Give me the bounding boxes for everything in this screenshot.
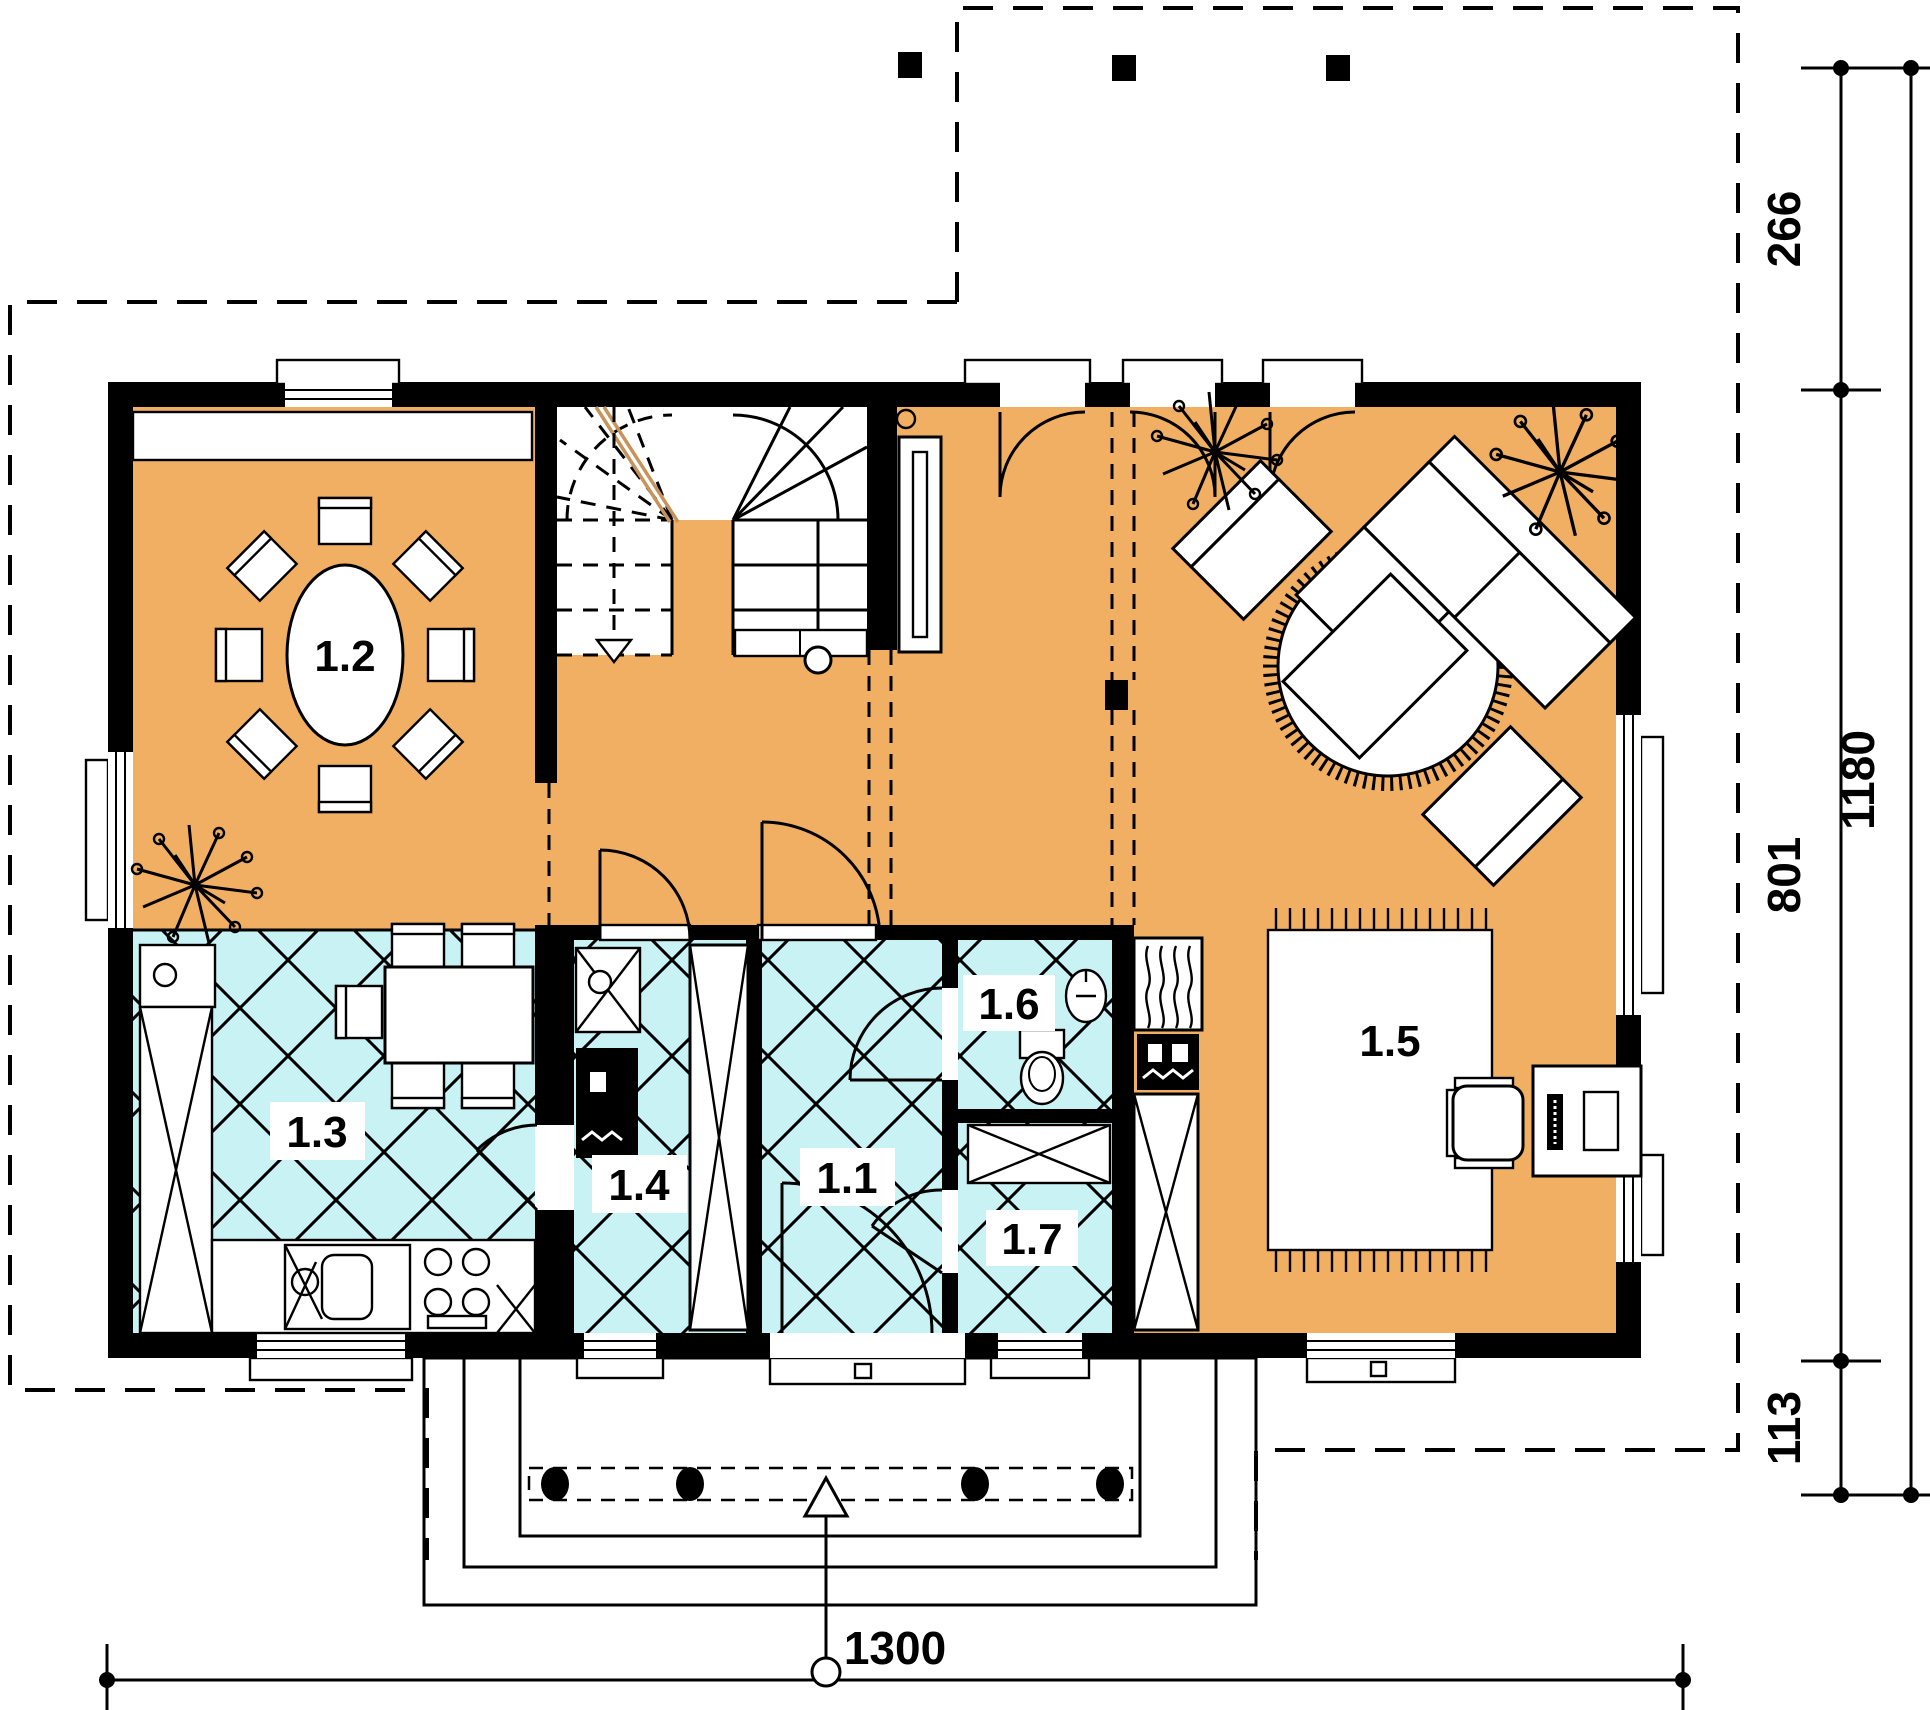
window-dining-top: [277, 360, 399, 407]
window-living-right-upper: [1616, 715, 1663, 1015]
dimension-bottom-total: 1300: [99, 1622, 1691, 1710]
entry-hall: 1.1: [800, 1148, 895, 1206]
wall-hall-rooms-b: [690, 925, 758, 940]
room-label-utility: 1.4: [608, 1161, 670, 1210]
wall-wc-storage: [956, 1109, 1112, 1123]
desk-chair: [1447, 1078, 1523, 1168]
washer-icon: [576, 948, 640, 1032]
wall-hall-rooms-c: [876, 925, 1130, 940]
terrace-posts: [898, 52, 1350, 81]
entry-hall-floor: [762, 940, 942, 1333]
sideboard: [133, 412, 532, 460]
wall-stairs-right: [867, 382, 897, 650]
window-utility-bottom: [577, 1333, 663, 1378]
wall-dining-hall: [535, 407, 557, 783]
window-living-bottom: [1307, 1333, 1455, 1382]
wall-hall-rooms-a: [535, 925, 600, 940]
floor-plan-drawing: 266 801 113 1180 1300: [0, 0, 1930, 1710]
hall-radiator: [897, 410, 941, 652]
kitchen-table: [385, 967, 533, 1063]
fireplace-stove-icon: [1137, 1034, 1199, 1090]
wall-kitchen-utility-b: [535, 1210, 574, 1333]
dim-1300: 1300: [844, 1622, 946, 1674]
window-storage-bottom: [991, 1333, 1089, 1378]
dim-113: 113: [1758, 1391, 1810, 1465]
tall-cabinet: [140, 1007, 212, 1333]
dim-1180: 1180: [1832, 730, 1884, 830]
dim-801: 801: [1758, 837, 1810, 914]
post-icon: [1326, 55, 1350, 81]
window-kitchen-bottom: [250, 1333, 412, 1380]
post-icon: [1112, 55, 1136, 81]
porch-column-icon: [961, 1467, 989, 1501]
room-label-dining: 1.2: [314, 632, 375, 681]
wardrobe: [1134, 1094, 1198, 1330]
porch-column-icon: [1096, 1467, 1124, 1501]
room-label-entry: 1.1: [816, 1154, 877, 1203]
desk: [1533, 1066, 1641, 1176]
dim-266: 266: [1758, 191, 1810, 268]
wall-stub-hall-living: [1105, 680, 1128, 710]
dimension-right-total: 1180: [1832, 60, 1930, 1503]
entrance-porch: [424, 1358, 1256, 1686]
toilet-icon: [1020, 1030, 1064, 1104]
paper-icon: [1584, 1092, 1618, 1150]
wall-entry-wc-a: [942, 940, 958, 988]
sink-icon: [1066, 970, 1106, 1022]
door-handle-icon: [1371, 1362, 1386, 1376]
porch-column-icon: [676, 1467, 704, 1501]
stair-walkline-end-icon: [805, 647, 831, 673]
floor-plan-page: 266 801 113 1180 1300: [0, 0, 1930, 1710]
wall-rooms-living: [1112, 925, 1134, 1358]
kitchen-sink-icon: [285, 1245, 410, 1329]
room-label-wc: 1.6: [978, 980, 1039, 1029]
wall-entry-wc-c: [942, 1273, 958, 1333]
wall-kitchen-utility-a: [535, 925, 574, 1125]
post-icon: [898, 52, 922, 78]
wardrobe: [690, 945, 748, 1330]
entrance-arrow-icon: [805, 1478, 847, 1686]
room-label-living: 1.5: [1359, 1017, 1420, 1066]
water-heater-icon: [1134, 938, 1202, 1030]
door-handle-icon: [855, 1364, 871, 1378]
porch-column-icon: [541, 1467, 569, 1501]
wall-entry-wc-b: [942, 1080, 958, 1190]
room-label-storage: 1.7: [1001, 1215, 1062, 1264]
boiler-stove-icon: [576, 1048, 638, 1158]
shelf-icon: [968, 1125, 1110, 1183]
room-label-kitchen: 1.3: [286, 1108, 347, 1157]
window-dining-left: [86, 752, 133, 928]
